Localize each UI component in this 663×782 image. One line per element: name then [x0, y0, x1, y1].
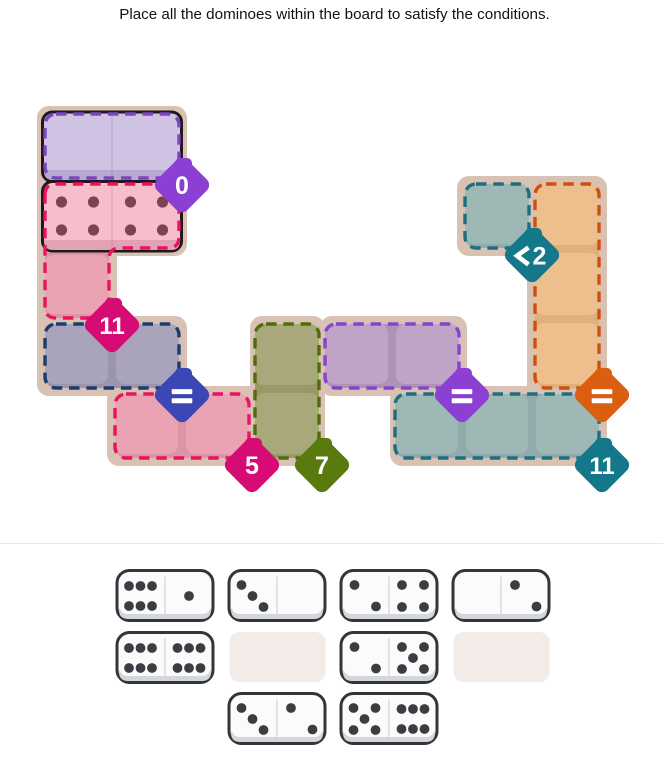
svg-text:5: 5 — [245, 452, 259, 480]
svg-text:0: 0 — [175, 172, 189, 200]
svg-text:7: 7 — [315, 452, 329, 480]
svg-text:11: 11 — [99, 313, 124, 340]
svg-text:11: 11 — [589, 453, 614, 480]
svg-text:2: 2 — [533, 243, 547, 271]
